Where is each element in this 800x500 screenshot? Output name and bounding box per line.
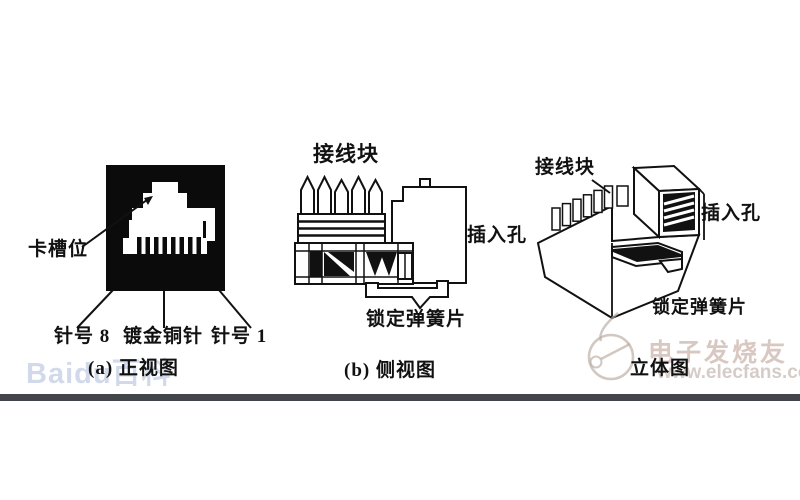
elecfans-logo-icon bbox=[589, 313, 633, 379]
iso-view-drawing bbox=[538, 166, 704, 318]
side-idc-teeth bbox=[301, 177, 382, 215]
label-iso-wiring-block: 接线块 bbox=[535, 158, 595, 179]
label-iso-insertion-hole: 插入孔 bbox=[701, 204, 761, 225]
label-gold-pins: 镀金铜针 bbox=[123, 327, 203, 348]
side-spring-leaf bbox=[366, 281, 448, 308]
label-pin1: 针号 1 bbox=[211, 327, 267, 348]
label-pin8: 针号 8 bbox=[54, 327, 110, 348]
label-iso-locking-spring: 锁定弹簧片 bbox=[652, 298, 747, 318]
label-side-insertion-hole: 插入孔 bbox=[467, 226, 527, 247]
footer-divider-bar bbox=[0, 394, 800, 401]
caption-side-view: (b) 侧视图 bbox=[344, 355, 436, 382]
side-top-tab bbox=[420, 179, 430, 187]
label-side-locking-spring: 锁定弹簧片 bbox=[366, 310, 466, 331]
label-card-slot: 卡槽位 bbox=[28, 240, 88, 261]
label-side-wiring-block: 接线块 bbox=[313, 143, 379, 166]
side-view-drawing bbox=[295, 177, 466, 308]
caption-front-view: (a) 正视图 bbox=[88, 353, 179, 380]
caption-iso-view: 立体图 bbox=[630, 353, 690, 380]
diagram-image: Baidu百科 电子发烧友 www.elecfans.com 卡槽位 针号 8 … bbox=[0, 0, 800, 500]
front-view-drawing bbox=[77, 165, 251, 328]
line-art bbox=[0, 0, 800, 500]
